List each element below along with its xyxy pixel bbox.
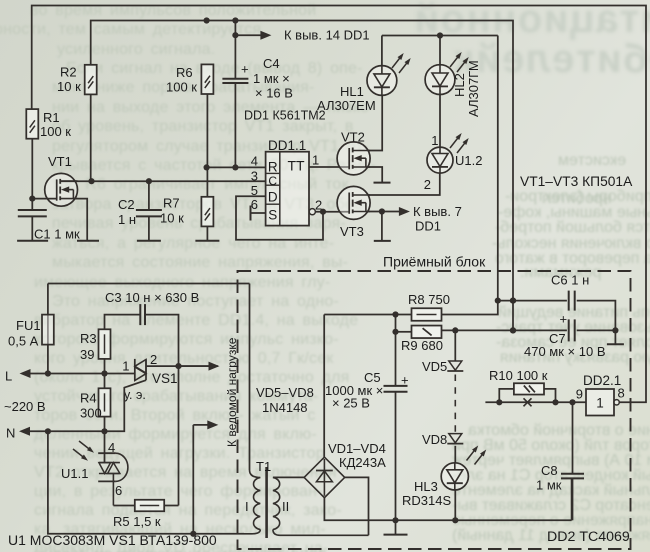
svg-text:1N4148: 1N4148 — [262, 400, 308, 415]
svg-text:470 мк × 10 В: 470 мк × 10 В — [524, 344, 606, 359]
svg-text:6: 6 — [251, 197, 258, 212]
svg-text:DD1: DD1 — [415, 219, 441, 234]
svg-text:1: 1 — [431, 133, 438, 148]
svg-text:АЛ307ЕМ: АЛ307ЕМ — [317, 98, 376, 113]
svg-text:+: + — [560, 312, 568, 327]
svg-text:FU1: FU1 — [16, 318, 41, 333]
svg-text:1: 1 — [596, 396, 604, 411]
svg-text:DD1 К561ТМ2: DD1 К561ТМ2 — [244, 109, 326, 123]
svg-text:Приёмный блок: Приёмный блок — [383, 254, 486, 270]
svg-text:C6 1 н: C6 1 н — [551, 273, 589, 288]
svg-text:HL2: HL2 — [452, 73, 467, 97]
svg-text:1: 1 — [122, 359, 129, 374]
svg-text:R6: R6 — [176, 65, 193, 80]
svg-text:100 к: 100 к — [40, 124, 71, 139]
svg-text:ТТ: ТТ — [287, 158, 305, 174]
svg-text:R9 680: R9 680 — [401, 338, 443, 353]
svg-text:U1.1: U1.1 — [61, 466, 88, 481]
svg-text:VD1–VD4: VD1–VD4 — [328, 441, 386, 456]
svg-text:~220 В: ~220 В — [4, 399, 46, 414]
svg-text:10 к: 10 к — [160, 211, 184, 226]
svg-text:R3: R3 — [80, 331, 97, 346]
svg-text:1 мк: 1 мк — [536, 478, 562, 493]
svg-text:C3 10 н × 630 В: C3 10 н × 630 В — [105, 290, 199, 305]
svg-text:VT3: VT3 — [340, 224, 364, 239]
svg-text:II: II — [282, 499, 289, 514]
svg-text:4: 4 — [251, 154, 258, 169]
svg-text:у. э.: у. э. — [124, 388, 146, 402]
svg-text:C4: C4 — [263, 56, 280, 71]
svg-text:C2: C2 — [118, 197, 135, 212]
svg-text:U1 МОС3083М VS1 ВТА139-800: U1 МОС3083М VS1 ВТА139-800 — [8, 532, 217, 548]
svg-text:4: 4 — [108, 440, 115, 455]
svg-text:VD5: VD5 — [422, 359, 447, 374]
svg-text:8: 8 — [618, 386, 625, 401]
svg-text:+: + — [401, 373, 409, 388]
svg-text:VD5–VD8: VD5–VD8 — [256, 385, 314, 400]
svg-text:DD2 ТС4069: DD2 ТС4069 — [547, 529, 630, 545]
svg-text:10 к: 10 к — [57, 79, 81, 94]
svg-text:C1 1 мк: C1 1 мк — [34, 227, 80, 242]
svg-text:U1.2: U1.2 — [455, 153, 482, 168]
svg-text:N: N — [6, 426, 15, 441]
svg-text:× 25 В: × 25 В — [332, 396, 370, 411]
svg-text:К выв. 7: К выв. 7 — [413, 204, 462, 219]
svg-text:2: 2 — [424, 177, 431, 192]
svg-text:9: 9 — [576, 387, 583, 402]
svg-text:К выв. 14 DD1: К выв. 14 DD1 — [284, 28, 370, 43]
svg-text:× 16 В: × 16 В — [255, 86, 293, 101]
svg-text:39: 39 — [80, 347, 94, 362]
svg-text:VT1–VT3 КП501А: VT1–VT3 КП501А — [520, 174, 633, 189]
svg-text:Т1: Т1 — [256, 459, 271, 474]
svg-text:HL1: HL1 — [340, 84, 364, 99]
svg-text:VS1: VS1 — [152, 371, 178, 386]
svg-text:HL3: HL3 — [414, 479, 438, 494]
svg-text:КД243А: КД243А — [339, 455, 386, 470]
svg-text:R4: R4 — [80, 391, 97, 406]
svg-text:+: + — [241, 62, 249, 77]
svg-text:3: 3 — [251, 169, 258, 184]
svg-text:DD1.1: DD1.1 — [268, 138, 306, 153]
svg-text:C: C — [268, 174, 277, 188]
svg-text:D: D — [268, 190, 278, 205]
svg-text:1: 1 — [312, 153, 319, 168]
svg-text:C8: C8 — [541, 463, 558, 478]
svg-text:100 к: 100 к — [166, 80, 197, 95]
svg-text:К ведомой нагрузке: К ведомой нагрузке — [225, 337, 239, 447]
svg-text:VD8: VD8 — [422, 432, 447, 447]
svg-text:R8 750: R8 750 — [408, 292, 450, 307]
svg-text:R1: R1 — [43, 110, 60, 125]
svg-text:6: 6 — [115, 483, 122, 498]
svg-text:0,5 А: 0,5 А — [8, 334, 39, 349]
svg-text:S: S — [268, 208, 277, 223]
svg-text:VT1: VT1 — [48, 154, 72, 169]
svg-text:RD314S: RD314S — [402, 493, 451, 508]
svg-text:L: L — [5, 369, 12, 384]
svg-text:R5 1,5 к: R5 1,5 к — [113, 514, 161, 529]
svg-text:АЛ307ГМ: АЛ307ГМ — [466, 60, 481, 117]
svg-text:DD2.1: DD2.1 — [583, 373, 621, 388]
svg-text:I: I — [245, 499, 249, 514]
svg-text:R2: R2 — [60, 65, 77, 80]
svg-text:R7: R7 — [163, 196, 180, 211]
svg-text:300: 300 — [80, 406, 102, 421]
svg-text:1 мк ×: 1 мк × — [253, 71, 290, 86]
svg-text:R10 100 к: R10 100 к — [489, 368, 548, 383]
svg-text:VT2: VT2 — [341, 130, 365, 145]
svg-text:R: R — [268, 159, 278, 174]
svg-text:2: 2 — [150, 352, 157, 367]
svg-text:1 н: 1 н — [118, 212, 136, 227]
